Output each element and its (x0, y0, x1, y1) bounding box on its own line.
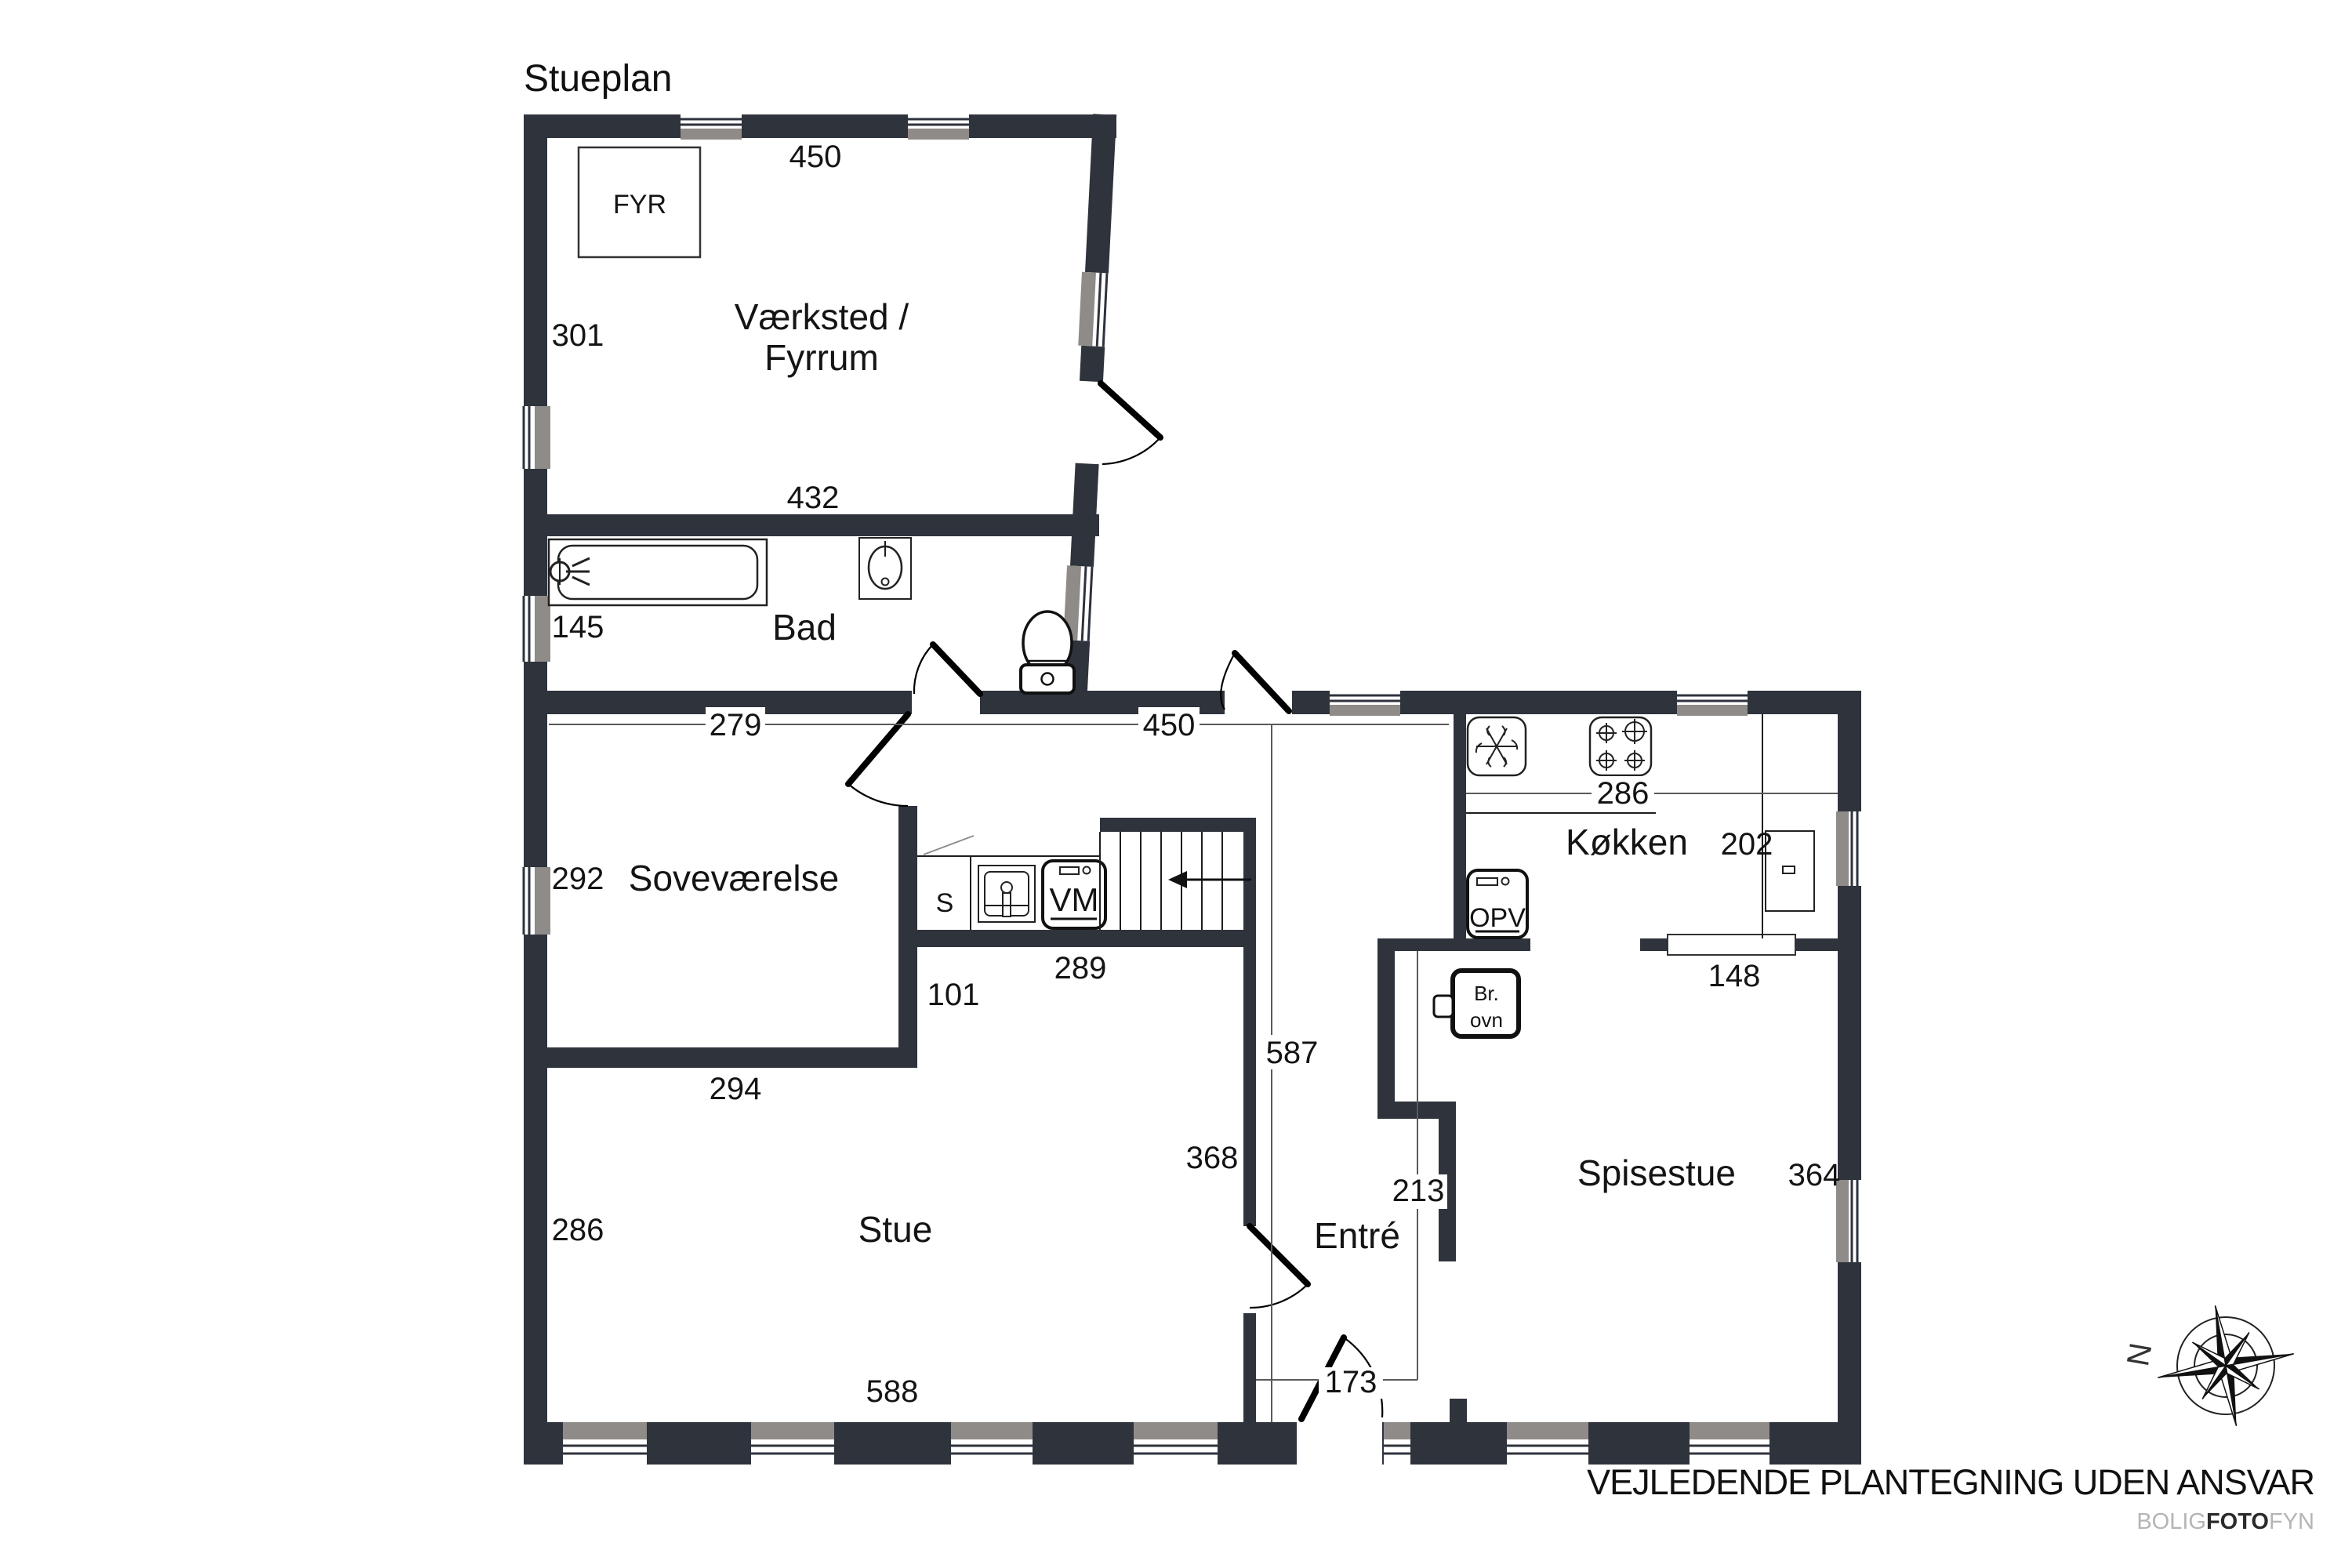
bad-sink-icon (859, 538, 911, 599)
room-label-vaerksted-1: Værksted / (735, 296, 909, 337)
washing-machine-icon: VM (1043, 861, 1105, 928)
window-right-koekken (1836, 811, 1863, 886)
room-label-sovevaerelse: Soveværelse (629, 858, 839, 898)
window-top-2 (908, 113, 969, 140)
door-sovevaerelse (848, 714, 908, 806)
room-label-vaerksted-2: Fyrrum (764, 337, 879, 378)
door-entre-exterior-north (1221, 653, 1289, 711)
stairs-direction-arrow (1168, 871, 1251, 888)
window-koekken-top-1 (1330, 689, 1400, 716)
page-title: Stueplan (524, 58, 673, 100)
dim-vaerksted-top: 450 (789, 140, 842, 174)
dim-sovevaerelse-bottom: 294 (710, 1072, 762, 1106)
dim-entre-width: 213 (1392, 1174, 1445, 1208)
window-bottom-stue-2 (751, 1422, 834, 1465)
dim-spisestue-right: 364 (1788, 1158, 1841, 1192)
window-left-sovevaerelse (519, 867, 552, 935)
brand-logo: BOLIGFOTOFYN (2136, 1509, 2314, 1534)
window-bottom-spisestue-1 (1507, 1422, 1588, 1465)
counter-sink-icon (978, 866, 1035, 922)
windows (519, 113, 1863, 1465)
compass-rose-icon (2147, 1294, 2304, 1438)
walls (524, 114, 1861, 1465)
door-vaerksted-exterior (1101, 383, 1160, 464)
wood-stove-label-2: ovn (1470, 1008, 1503, 1032)
door-bad (914, 644, 980, 694)
dim-vaerksted-left: 301 (552, 318, 604, 353)
dim-koekken-width: 286 (1597, 776, 1650, 811)
window-bottom-stue-1 (563, 1422, 647, 1465)
room-label-entre: Entré (1314, 1215, 1400, 1256)
dim-stue-left: 286 (552, 1213, 604, 1247)
utility-counter: S VM (917, 836, 1105, 930)
floor-plan-page: FYR S (0, 0, 2352, 1568)
window-koekken-top-2 (1677, 689, 1748, 716)
window-left-bad (519, 596, 552, 662)
wood-stove-icon: Br. ovn (1434, 971, 1519, 1036)
dim-inner-wall: 101 (927, 978, 980, 1012)
boiler-box: FYR (579, 147, 700, 257)
dim-stue-bottom: 588 (866, 1374, 919, 1409)
room-label-stue: Stue (858, 1209, 933, 1250)
dim-stue-right: 368 (1186, 1141, 1239, 1175)
doors (848, 383, 1382, 1419)
room-label-bad: Bad (772, 607, 837, 648)
disclaimer-text: VEJLEDENDE PLANTEGNING UDEN ANSVAR (1587, 1462, 2314, 1502)
toilet-icon (1021, 612, 1074, 693)
dishwasher-icon: OPV (1468, 870, 1527, 938)
floor-plan-drawing: FYR S (0, 0, 2352, 1568)
dishwasher-label: OPV (1469, 903, 1526, 933)
wood-stove-label-1: Br. (1474, 982, 1499, 1005)
window-left-vaerksted (519, 406, 552, 469)
door-stue-entre (1250, 1226, 1308, 1308)
washing-machine-label: VM (1050, 881, 1099, 918)
dim-counter: 289 (1054, 951, 1107, 985)
dim-vaerksted-bottom: 432 (787, 481, 840, 515)
sink-small-label: S (936, 888, 954, 918)
window-bottom-spisestue-2 (1690, 1422, 1769, 1465)
stove-icon (1590, 717, 1651, 775)
window-vaerksted-right (1078, 272, 1113, 347)
dim-koekken-right: 202 (1721, 827, 1773, 862)
window-bottom-stue-3 (951, 1422, 1033, 1465)
dim-hall-width: 450 (1143, 708, 1196, 742)
window-top-1 (681, 113, 742, 140)
window-bottom-stue-4 (1134, 1422, 1218, 1465)
room-label-koekken: Køkken (1566, 822, 1688, 862)
bathtub-icon (549, 539, 767, 605)
dim-sovevaerelse-top: 279 (710, 708, 762, 742)
room-label-spisestue: Spisestue (1577, 1152, 1736, 1193)
fridge-icon (1468, 717, 1526, 775)
dim-entrance: 173 (1325, 1365, 1377, 1399)
dim-entre-height: 587 (1266, 1036, 1319, 1070)
window-bottom-entre (1384, 1422, 1410, 1465)
dim-koekken-opening: 148 (1708, 959, 1761, 993)
opening-148 (1668, 935, 1795, 955)
dim-bad-left: 145 (552, 610, 604, 644)
compass-north-label: N (2121, 1341, 2158, 1369)
stairs (1100, 832, 1251, 930)
boiler-label: FYR (613, 190, 666, 220)
dim-sovevaerelse-left: 292 (552, 862, 604, 896)
